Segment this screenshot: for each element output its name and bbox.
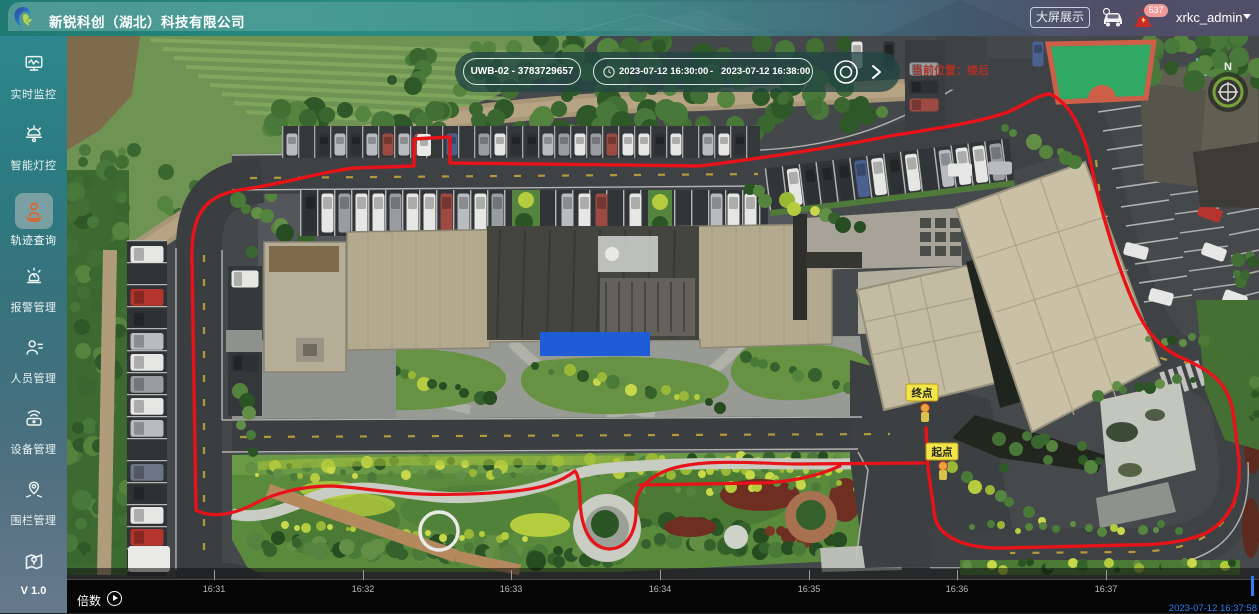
svg-text:起点: 起点 (931, 446, 953, 459)
svg-text:终点: 终点 (912, 387, 933, 400)
svg-text:当前位置：楼后: 当前位置：楼后 (912, 63, 989, 77)
svg-text:N: N (1224, 61, 1232, 73)
